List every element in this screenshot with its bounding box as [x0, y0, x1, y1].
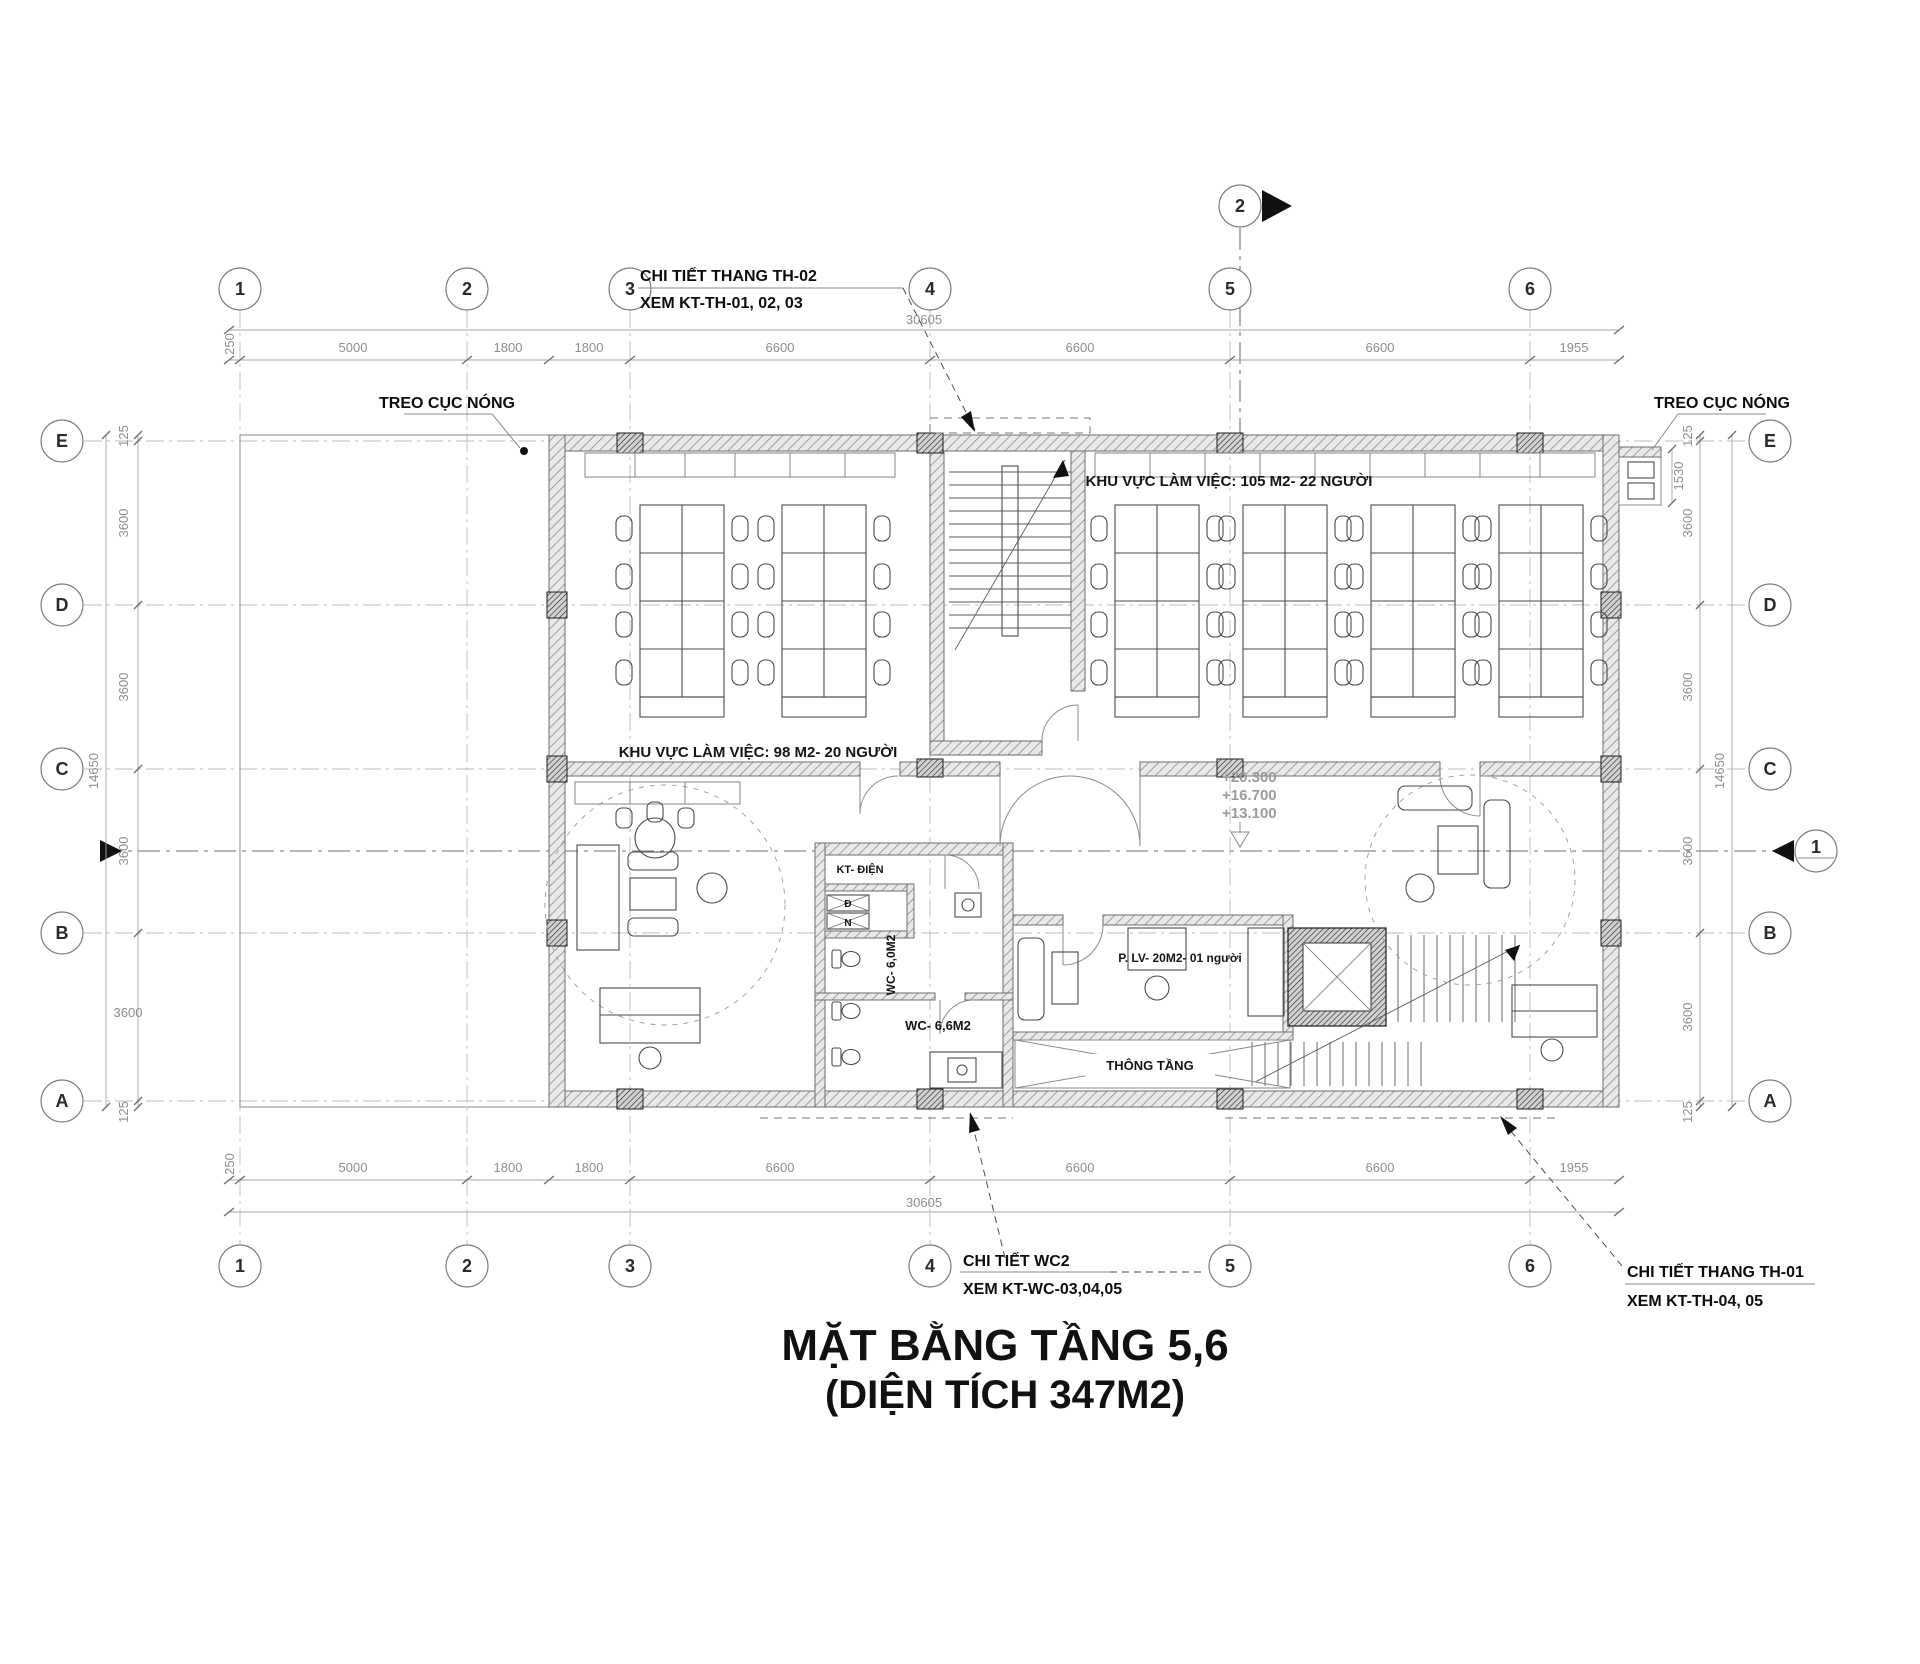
callout-wc2-line2: XEM KT-WC-03,04,05: [963, 1281, 1122, 1298]
interior-walls: [565, 451, 1603, 1107]
grid-label: 5: [1225, 1256, 1235, 1276]
dim-total-top: 30605: [906, 312, 942, 327]
section-arrow-right: [1772, 840, 1794, 862]
dim-label: 125: [1680, 425, 1695, 447]
dim-total-bottom: 30605: [906, 1195, 942, 1210]
grid-label: 1: [235, 279, 245, 299]
dim-label: 3600: [116, 837, 131, 866]
grid-label: 3: [625, 1256, 635, 1276]
elevation-value: +13.100: [1222, 805, 1277, 822]
desk-cluster: [1219, 505, 1351, 717]
dim-label: 1955: [1560, 1160, 1589, 1175]
dim-label: 5000: [339, 1160, 368, 1175]
dim-label: 6600: [766, 340, 795, 355]
room-label-office-left: KHU VỰC LÀM VIỆC: 98 M2- 20 NGƯỜI: [619, 743, 898, 761]
grid-label: A: [56, 1091, 69, 1111]
grid-label: 5: [1225, 279, 1235, 299]
elevation-arrow-icon: [1231, 832, 1249, 847]
office-furniture: [585, 453, 1607, 717]
grid-bubbles: 1 2 3 4 5 6 1 2 3 4 5 6 E D C B A E D: [41, 268, 1791, 1287]
grid-bubble-col-bottom: 1 2 3 4 5 6: [219, 1245, 1551, 1287]
room-label-office-right: KHU VỰC LÀM VIỆC: 105 M2- 22 NGƯỜI: [1086, 472, 1373, 490]
grid-label: 6: [1525, 1256, 1535, 1276]
elevator-shaft: [1288, 928, 1386, 1026]
dim-label: 125: [116, 425, 131, 447]
grid-label: E: [1764, 431, 1776, 451]
grid-label: 4: [925, 1256, 935, 1276]
drawing-title: MẶT BẰNG TẦNG 5,6 (DIỆN TÍCH 347M2): [781, 1320, 1228, 1417]
dim-label: 1800: [575, 340, 604, 355]
dim-label: 3600: [114, 1005, 143, 1020]
section-2-arrow: [1262, 190, 1292, 222]
grid-label: A: [1764, 1091, 1777, 1111]
floor-plan-canvas: 1 2 30605 250 5000 1800 1800 6600 6600 6…: [0, 0, 1920, 1664]
floor-plan-page: 1 2 30605 250 5000 1800 1800 6600 6600 6…: [0, 0, 1920, 1664]
dim-label: 5000: [339, 340, 368, 355]
grid-label: 2: [462, 1256, 472, 1276]
drawing-title-line1: MẶT BẰNG TẦNG 5,6: [781, 1320, 1228, 1370]
plv-furniture: [1018, 928, 1284, 1020]
treo-cuc-nong-left: TREO CỤC NÓNG: [379, 393, 528, 455]
elevation-marks: +20.300 +16.700 +13.100: [1222, 769, 1277, 847]
elevation-value: +20.300: [1222, 769, 1277, 786]
zone-circle: [1365, 775, 1575, 985]
dim-label: 3600: [1680, 1003, 1695, 1032]
dim-label: 3600: [1680, 673, 1695, 702]
dim-total-left: 14650: [86, 753, 101, 789]
desk-cluster: [616, 505, 748, 717]
terrace-outline: [240, 435, 549, 1107]
dim-label: 1800: [494, 1160, 523, 1175]
dim-label: 1800: [575, 1160, 604, 1175]
stair-th02: [949, 460, 1078, 741]
desk-cluster: [1091, 505, 1223, 717]
toilet-icon: [832, 950, 860, 968]
grid-bubble-row-right: E D C B A: [1749, 420, 1791, 1122]
leader-arrow: [1500, 1116, 1517, 1135]
room-label-wc60: WC- 6,0M2: [884, 934, 898, 995]
grid-label: E: [56, 431, 68, 451]
section-1-label: 1: [1811, 837, 1821, 857]
room-label-closet-d: Đ: [844, 899, 851, 910]
desk-cluster: [1347, 505, 1479, 717]
dim-label: 6600: [1366, 1160, 1395, 1175]
callout-th01: CHI TIẾT THANG TH-01 XEM KT-TH-04, 05: [1500, 1116, 1815, 1310]
doors: [860, 776, 1480, 1034]
treo-right-label: TREO CỤC NÓNG: [1654, 393, 1790, 412]
dim-label: 3600: [116, 509, 131, 538]
dim-label: 6600: [1366, 340, 1395, 355]
callout-th02-line2: XEM KT-TH-01, 02, 03: [640, 295, 803, 312]
dim-label: 250: [222, 1153, 237, 1175]
room-label-closet-n: N: [844, 918, 851, 929]
grid-label: B: [1764, 923, 1777, 943]
callout-wc2-line1: CHI TIẾT WC2: [963, 1251, 1070, 1270]
grid-label: B: [56, 923, 69, 943]
grid-label: 6: [1525, 279, 1535, 299]
grid-bubble-row-left: E D C B A: [41, 420, 83, 1122]
toilet-icon: [832, 1002, 860, 1020]
grid-bubble-col-top: 1 2 3 4 5 6: [219, 268, 1551, 310]
drawing-title-line2: (DIỆN TÍCH 347M2): [825, 1371, 1185, 1417]
room-label-wc66: WC- 6,6M2: [905, 1018, 971, 1033]
grid-label: C: [56, 759, 69, 779]
callout-th01-line2: XEM KT-TH-04, 05: [1627, 1293, 1763, 1310]
elevation-value: +16.700: [1222, 787, 1277, 804]
grid-label: 1: [235, 1256, 245, 1276]
dim-label: 3600: [1680, 509, 1695, 538]
dim-label: 125: [116, 1101, 131, 1123]
grid-label: 3: [625, 279, 635, 299]
grid-label: 4: [925, 279, 935, 299]
dim-label: 3600: [1680, 837, 1695, 866]
executive-area-furniture: [545, 782, 785, 1069]
dim-label: 250: [222, 333, 237, 355]
void-thong-tang: THÔNG TẦNG: [1015, 1040, 1290, 1088]
leader-dot: [520, 447, 528, 455]
leader-arrow: [969, 1112, 980, 1133]
desk-cluster: [758, 505, 890, 717]
grid-label: D: [56, 595, 69, 615]
dim-label: 6600: [766, 1160, 795, 1175]
dim-label: 125: [1680, 1101, 1695, 1123]
toilet-icon: [832, 1048, 860, 1066]
right-room-furniture: [1365, 775, 1597, 1061]
dim-label: 3600: [116, 673, 131, 702]
dim-label: 1955: [1560, 340, 1589, 355]
dim-total-right: 14650: [1712, 753, 1727, 789]
grid-label: 2: [462, 279, 472, 299]
void-label: THÔNG TẦNG: [1106, 1058, 1193, 1073]
room-label-kt-dien: KT- ĐIỆN: [836, 863, 883, 876]
callout-th01-line1: CHI TIẾT THANG TH-01: [1627, 1262, 1804, 1281]
dim-label: 6600: [1066, 340, 1095, 355]
dim-label: 6600: [1066, 1160, 1095, 1175]
dim-label: 1800: [494, 340, 523, 355]
callout-th02-line1: CHI TIẾT THANG TH-02: [640, 266, 817, 285]
section-2-label: 2: [1235, 196, 1245, 216]
grid-label: D: [1764, 595, 1777, 615]
ac-ledge-right: 1530: [1619, 445, 1686, 507]
leader-arrow: [961, 411, 975, 432]
callout-wc2: CHI TIẾT WC2 XEM KT-WC-03,04,05: [960, 1112, 1205, 1298]
dim-label-ledge: 1530: [1671, 462, 1686, 491]
treo-left-label: TREO CỤC NÓNG: [379, 393, 515, 412]
desk-cluster: [1475, 505, 1607, 717]
room-label-plv: P. LV- 20M2- 01 người: [1118, 951, 1241, 965]
grid-label: C: [1764, 759, 1777, 779]
